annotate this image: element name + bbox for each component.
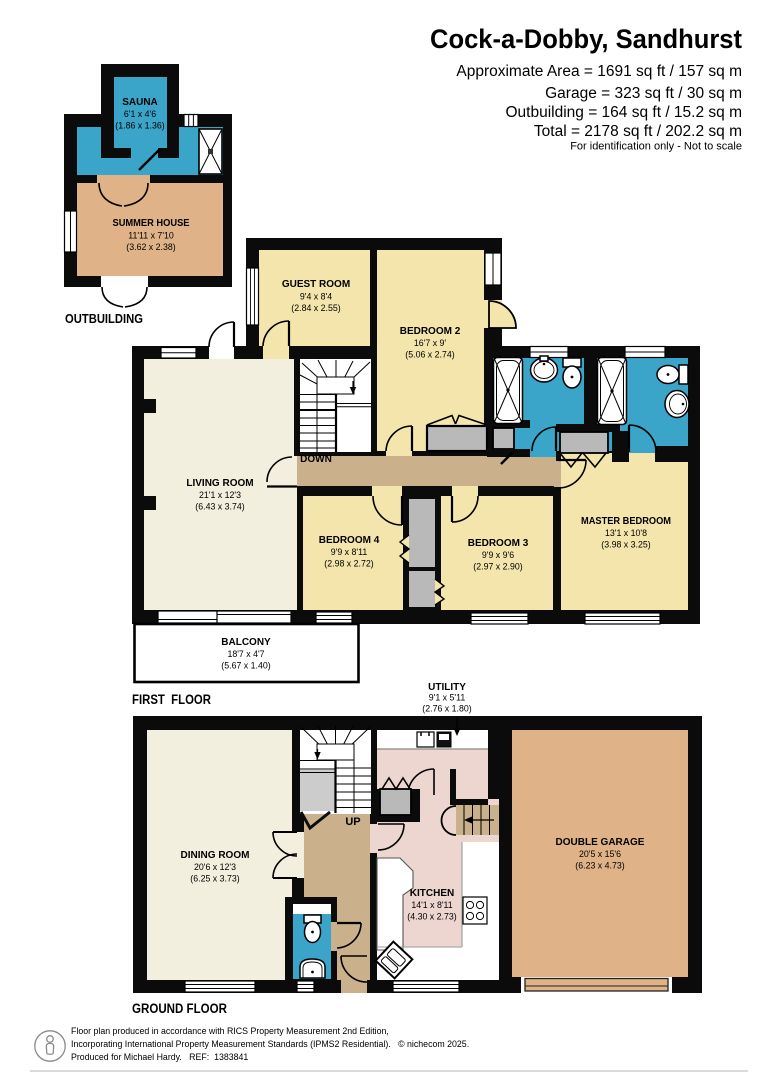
- svg-text:BEDROOM 3: BEDROOM 3: [468, 538, 529, 549]
- svg-text:(3.98 x 3.25): (3.98 x 3.25): [601, 540, 650, 550]
- svg-text:Approximate Area = 1691 sq ft: Approximate Area = 1691 sq ft / 157 sq m: [456, 63, 742, 80]
- svg-text:6'1 x 4'6: 6'1 x 4'6: [124, 109, 156, 119]
- svg-text:20'6 x 12'3: 20'6 x 12'3: [194, 862, 236, 872]
- svg-text:(2.98 x 2.72): (2.98 x 2.72): [324, 559, 373, 569]
- svg-text:Cock-a-Dobby, Sandhurst: Cock-a-Dobby, Sandhurst: [430, 24, 742, 54]
- svg-text:9'4 x 8'4: 9'4 x 8'4: [300, 292, 332, 302]
- svg-text:13'1 x 10'8: 13'1 x 10'8: [605, 528, 647, 538]
- svg-text:(2.97 x 2.90): (2.97 x 2.90): [473, 562, 522, 572]
- svg-text:LIVING ROOM: LIVING ROOM: [186, 478, 253, 489]
- svg-text:UTILITY: UTILITY: [428, 682, 466, 693]
- svg-text:9'9 x 9'6: 9'9 x 9'6: [482, 550, 514, 560]
- svg-text:21'1 x 12'3: 21'1 x 12'3: [199, 490, 241, 500]
- svg-text:GROUND FLOOR: GROUND FLOOR: [132, 1001, 227, 1016]
- svg-text:For identification only - Not: For identification only - Not to scale: [570, 141, 742, 153]
- svg-text:(6.23 x 4.73): (6.23 x 4.73): [575, 861, 624, 871]
- svg-text:SAUNA: SAUNA: [122, 97, 158, 108]
- svg-text:UP: UP: [345, 816, 360, 828]
- svg-text:BALCONY: BALCONY: [221, 637, 271, 648]
- svg-text:(1.86 x 1.36): (1.86 x 1.36): [115, 121, 164, 131]
- svg-text:(5.67 x 1.40): (5.67 x 1.40): [221, 661, 270, 671]
- svg-text:(6.43 x 3.74): (6.43 x 3.74): [195, 502, 244, 512]
- svg-text:(6.25 x 3.73): (6.25 x 3.73): [190, 874, 239, 884]
- svg-text:(4.30 x 2.73): (4.30 x 2.73): [407, 912, 456, 922]
- svg-text:SUMMER HOUSE: SUMMER HOUSE: [113, 218, 190, 229]
- svg-text:Floor plan produced in accorda: Floor plan produced in accordance with R…: [71, 1026, 389, 1036]
- svg-text:(3.62 x 2.38): (3.62 x 2.38): [126, 242, 175, 252]
- svg-text:DOWN: DOWN: [300, 454, 332, 465]
- svg-text:DOUBLE GARAGE: DOUBLE GARAGE: [556, 837, 645, 848]
- svg-text:14'1 x 8'11: 14'1 x 8'11: [411, 900, 452, 910]
- svg-text:GUEST ROOM: GUEST ROOM: [282, 279, 350, 290]
- svg-text:16'7 x 9': 16'7 x 9': [414, 338, 447, 348]
- svg-text:BEDROOM 2: BEDROOM 2: [400, 326, 461, 337]
- svg-text:Outbuilding = 164 sq ft / 15.2: Outbuilding = 164 sq ft / 15.2 sq m: [505, 104, 742, 121]
- svg-text:Total = 2178 sq ft / 202.2 sq: Total = 2178 sq ft / 202.2 sq m: [534, 123, 742, 140]
- svg-text:(5.06 x 2.74): (5.06 x 2.74): [405, 350, 454, 360]
- svg-text:BEDROOM 4: BEDROOM 4: [319, 535, 380, 546]
- svg-text:OUTBUILDING: OUTBUILDING: [65, 312, 143, 326]
- svg-text:Incorporating International Pr: Incorporating International Property Mea…: [71, 1039, 469, 1049]
- svg-text:11'11 x 7'10: 11'11 x 7'10: [128, 231, 174, 241]
- svg-text:Produced for Michael Hardy.: Produced for Michael Hardy. REF: 1383841: [71, 1052, 248, 1062]
- svg-text:18'7 x 4'7: 18'7 x 4'7: [227, 649, 264, 659]
- svg-text:FIRST FLOOR: FIRST FLOOR: [132, 692, 211, 707]
- svg-text:(2.76 x 1.80): (2.76 x 1.80): [422, 704, 471, 714]
- svg-text:(2.84 x 2.55): (2.84 x 2.55): [291, 303, 340, 313]
- svg-text:9'1 x 5'11: 9'1 x 5'11: [429, 693, 466, 703]
- svg-text:20'5 x 15'6: 20'5 x 15'6: [579, 849, 621, 859]
- svg-text:9'9 x 8'11: 9'9 x 8'11: [331, 547, 368, 557]
- svg-text:Garage = 323 sq ft / 30 sq m: Garage = 323 sq ft / 30 sq m: [545, 85, 742, 102]
- svg-text:DINING ROOM: DINING ROOM: [181, 850, 250, 861]
- svg-text:MASTER BEDROOM: MASTER BEDROOM: [581, 516, 671, 527]
- svg-text:KITCHEN: KITCHEN: [410, 888, 454, 899]
